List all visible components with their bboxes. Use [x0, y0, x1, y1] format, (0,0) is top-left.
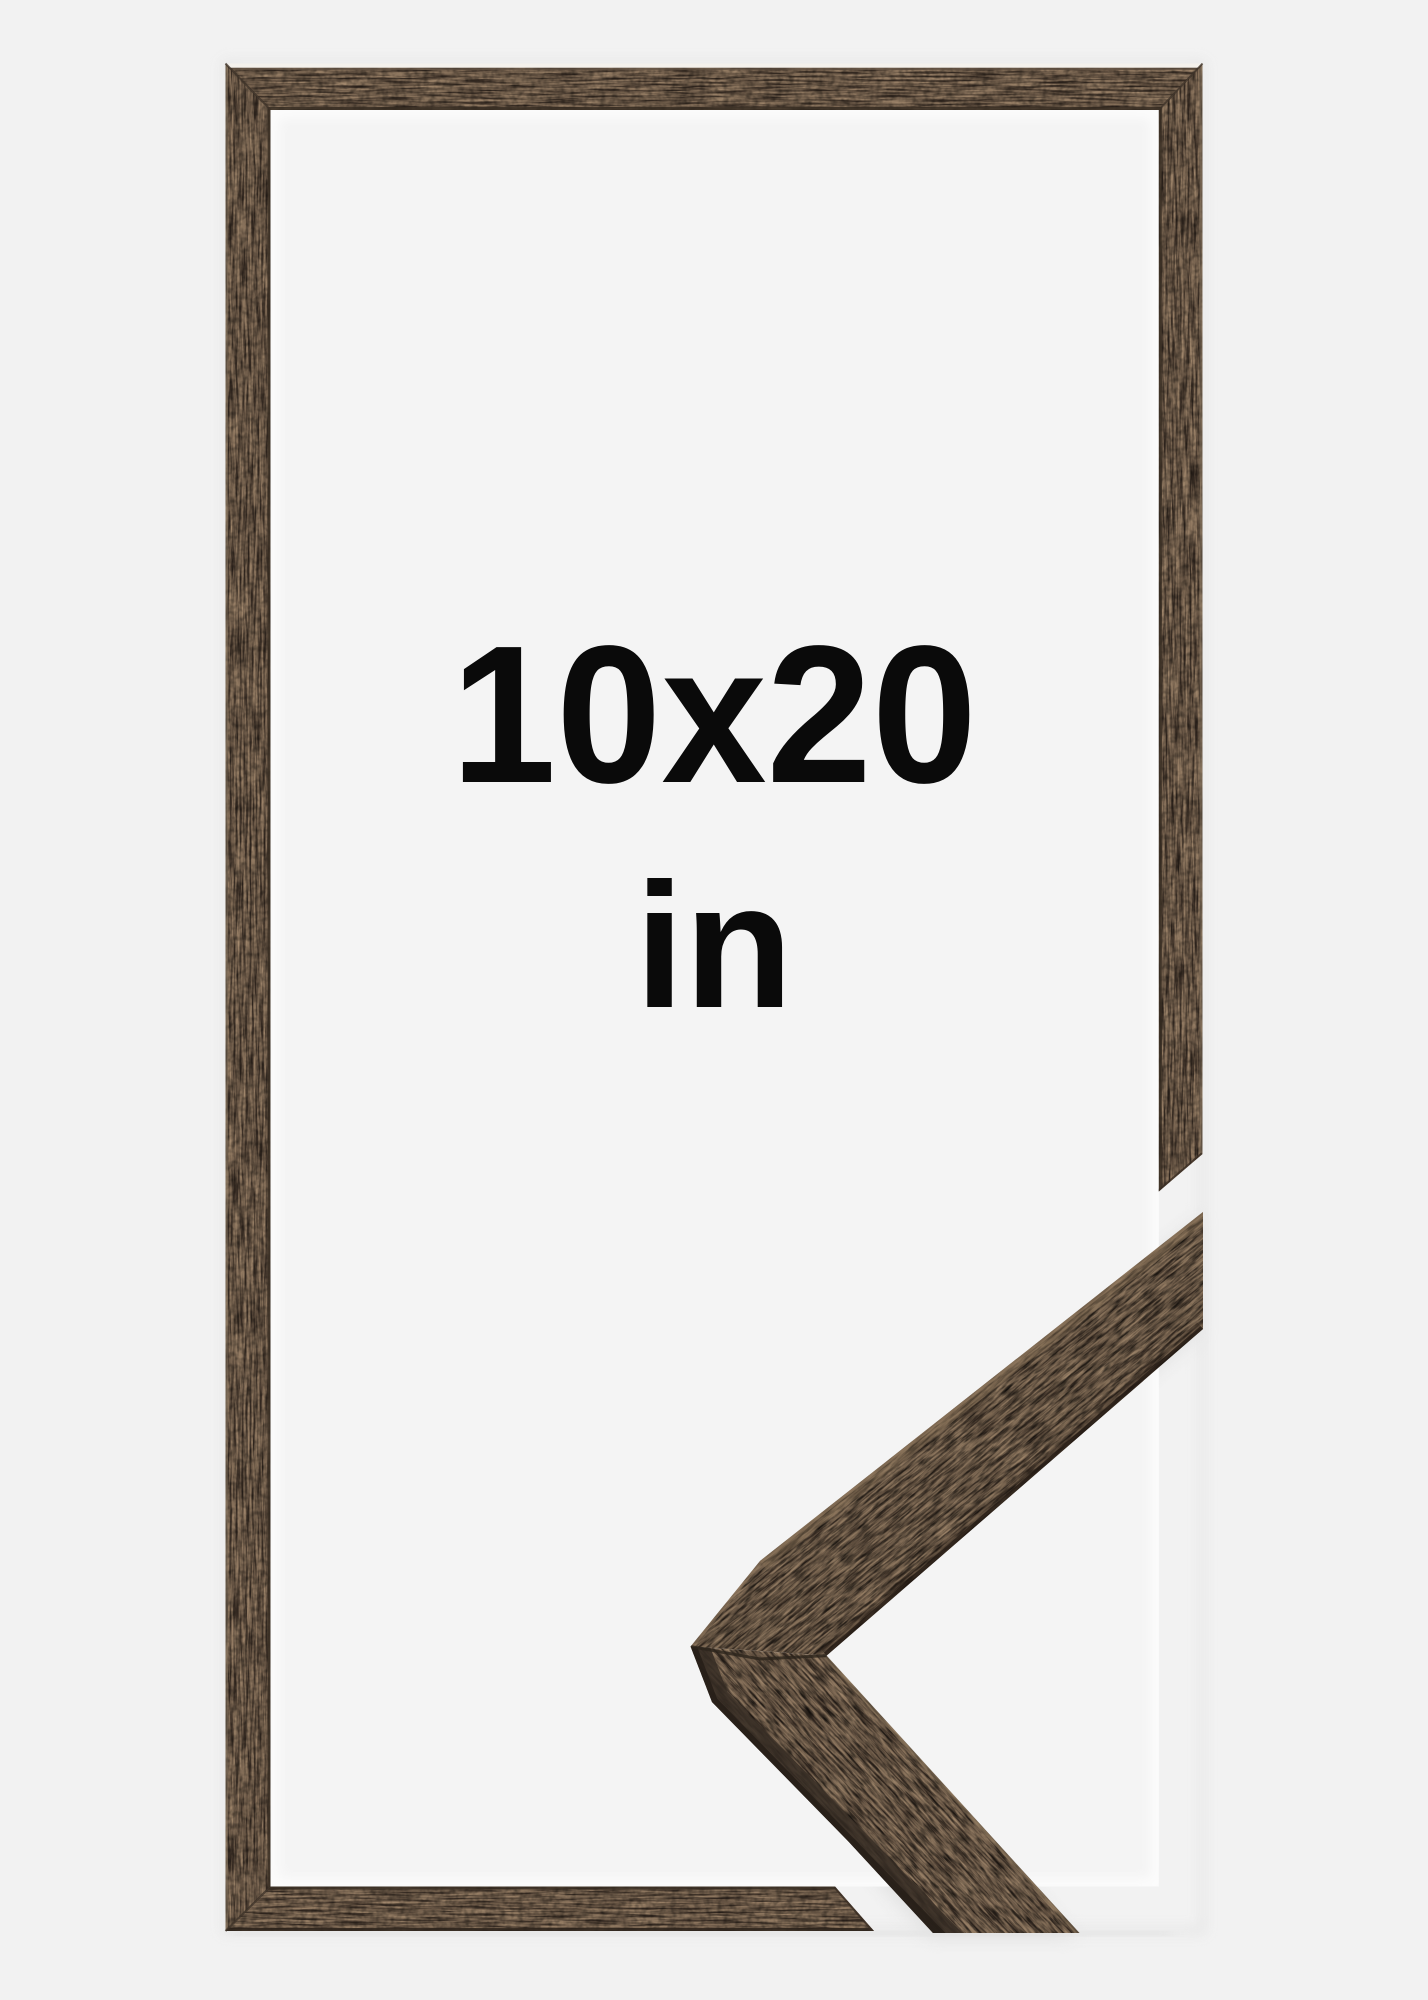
svg-text:10x20: 10x20 — [451, 605, 977, 824]
svg-text:in: in — [635, 846, 793, 1045]
